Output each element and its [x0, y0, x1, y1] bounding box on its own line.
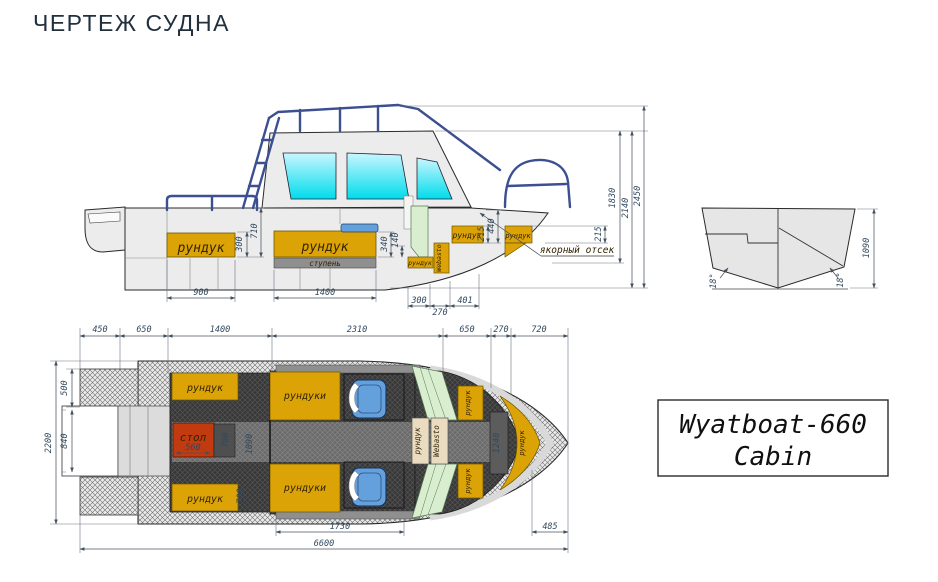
dim-401b: 401	[457, 296, 472, 306]
plan-locker-aft-top-label: рундук	[186, 383, 224, 394]
dim-650a: 650	[136, 325, 151, 335]
bow-locker-top-label: рундук	[464, 390, 472, 416]
dim-1730: 1730	[330, 522, 350, 532]
dim-300v: 300	[235, 236, 245, 252]
dim-1090i: 1090	[245, 434, 255, 454]
transom-step-area	[118, 406, 170, 476]
dim-900: 900	[193, 288, 208, 298]
dim-6600: 6600	[314, 539, 334, 549]
dim-1400p: 1400	[210, 325, 230, 335]
cabin-window-2	[347, 153, 409, 199]
seat-bottom	[349, 468, 386, 506]
seat-cushion-side	[341, 224, 378, 232]
dim-720: 720	[531, 325, 546, 335]
model-badge: Wyatboat-660 Cabin	[658, 400, 888, 476]
dim-2200: 2200	[44, 433, 54, 453]
side-locker-4b	[505, 243, 526, 257]
dim-300b: 300	[410, 296, 426, 306]
green-bulkhead-side	[411, 206, 428, 257]
dim-1830: 1830	[608, 188, 618, 208]
bow-locker-side-label: рундук	[518, 430, 526, 456]
dim-560: 560	[185, 443, 200, 453]
dim-650b: 650	[459, 325, 474, 335]
transom-view: 1090 18° 18°	[702, 208, 878, 289]
side-locker-2-label: рундук	[301, 240, 349, 255]
anchor-compartment-label: якорный отсек	[540, 245, 615, 256]
dim-485: 485	[542, 522, 557, 532]
dim-710: 710	[250, 223, 260, 238]
dim-1090: 1090	[862, 238, 872, 258]
deadrise-left: 18°	[709, 273, 719, 288]
dim-340: 340	[380, 236, 390, 252]
deadrise-right: 18°	[836, 272, 846, 287]
dim-450: 450	[92, 325, 107, 335]
dim-2310: 2310	[347, 325, 367, 335]
dim-2140: 2140	[621, 198, 631, 218]
dim-270b: 270	[432, 308, 447, 318]
swim-platform-top	[80, 369, 138, 407]
console-locker-label: рундук	[413, 427, 422, 455]
bow-locker-bottom-label: рундук	[464, 468, 472, 494]
dim-2450: 2450	[633, 186, 643, 206]
dim-700b: 700	[236, 488, 246, 503]
dim-270p: 270	[493, 325, 508, 335]
dim-440: 440	[487, 218, 497, 233]
blueprint-page: ЧЕРТЕЖ СУДНА	[0, 0, 938, 582]
step-label: ступень	[309, 259, 341, 268]
motor-well	[62, 406, 118, 476]
blueprint-canvas: рундук рундук ступень рундук рундук рунд…	[0, 0, 938, 582]
side-locker-5-label: рундук	[408, 259, 432, 267]
dim-215b: 215	[594, 226, 604, 241]
side-view: рундук рундук ступень рундук рундук рунд…	[85, 105, 648, 318]
plan-lockers-mid-top-label: рундуки	[283, 391, 326, 402]
webasto-side-label: Webasto	[435, 244, 443, 271]
bow-seat-rail	[505, 160, 570, 207]
dim-1400: 1400	[315, 288, 335, 298]
dim-700a: 700	[221, 432, 231, 447]
dim-140: 140	[391, 232, 401, 247]
console-webasto-label: Webasto	[432, 425, 441, 457]
side-locker-1-label: рундук	[177, 241, 225, 256]
bracket-slot	[88, 212, 120, 223]
dim-840: 840	[60, 433, 70, 448]
dim-215a: 215	[477, 226, 487, 241]
seat-top	[349, 380, 386, 418]
swim-platform-bottom	[80, 477, 138, 515]
cabin-window-1	[283, 153, 336, 199]
badge-line2: Cabin	[734, 442, 812, 472]
dim-1240: 1240	[492, 433, 502, 453]
plan-view: рундук рундук стол 560 рундуки рундуки	[44, 325, 568, 553]
plan-locker-aft-bottom-label: рундук	[186, 494, 224, 505]
badge-line1: Wyatboat-660	[679, 410, 867, 440]
transom-outline	[702, 208, 855, 288]
plan-lockers-mid-bottom-label: рундуки	[283, 483, 326, 494]
transom-dimensions: 1090	[850, 209, 878, 288]
dim-500: 500	[60, 380, 70, 395]
